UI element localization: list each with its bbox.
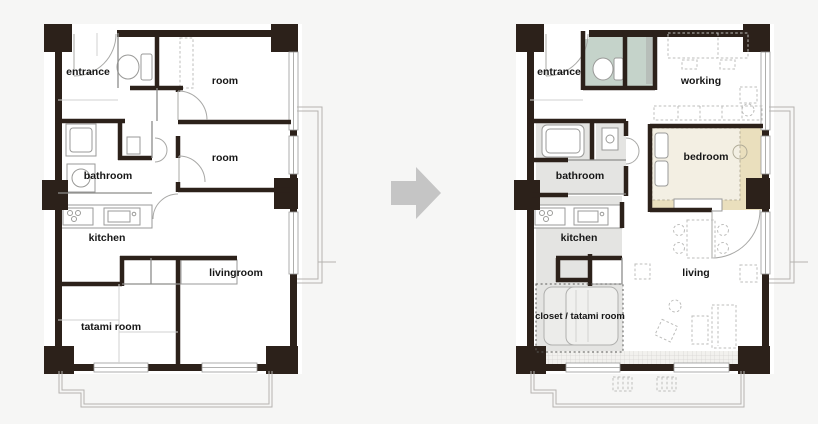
label-bathroom: bathroom xyxy=(84,170,132,182)
washbasin-icon xyxy=(602,128,618,150)
label-closet-tatami: closet / tatami room xyxy=(535,311,625,322)
label-room-middle: room xyxy=(212,152,238,164)
washbasin-icon xyxy=(127,137,140,154)
label-tatami-room: tatami room xyxy=(81,321,141,333)
toilet-icon xyxy=(117,54,152,80)
label-bathroom: bathroom xyxy=(556,170,604,182)
kitchen-counter xyxy=(530,205,622,228)
label-kitchen: kitchen xyxy=(561,232,598,244)
storage-cell xyxy=(590,258,622,284)
label-working: working xyxy=(680,75,721,87)
kitchen-counter xyxy=(58,205,152,228)
after-plan: entrance working bathroom bedroom kitche… xyxy=(514,24,808,407)
washing-machine-icon xyxy=(66,124,96,156)
washbasin-cabinet xyxy=(646,34,653,84)
bathtub-icon xyxy=(542,125,584,157)
label-room-top: room xyxy=(212,75,238,87)
label-entrance: entrance xyxy=(537,66,581,78)
deck-tile-strip xyxy=(540,351,762,364)
label-kitchen: kitchen xyxy=(89,232,126,244)
balcony-planters xyxy=(613,377,676,391)
before-plan: entrance room room bathroom kitchen livi… xyxy=(42,24,336,407)
label-entrance: entrance xyxy=(66,66,110,78)
transform-arrow-icon xyxy=(391,167,441,219)
label-livingroom: livingroom xyxy=(209,267,263,279)
label-living: living xyxy=(682,267,709,279)
renovation-floorplan-diagram: entrance room room bathroom kitchen livi… xyxy=(0,0,818,424)
label-bedroom: bedroom xyxy=(684,151,729,163)
bed xyxy=(652,128,740,211)
toilet-icon xyxy=(593,58,623,80)
